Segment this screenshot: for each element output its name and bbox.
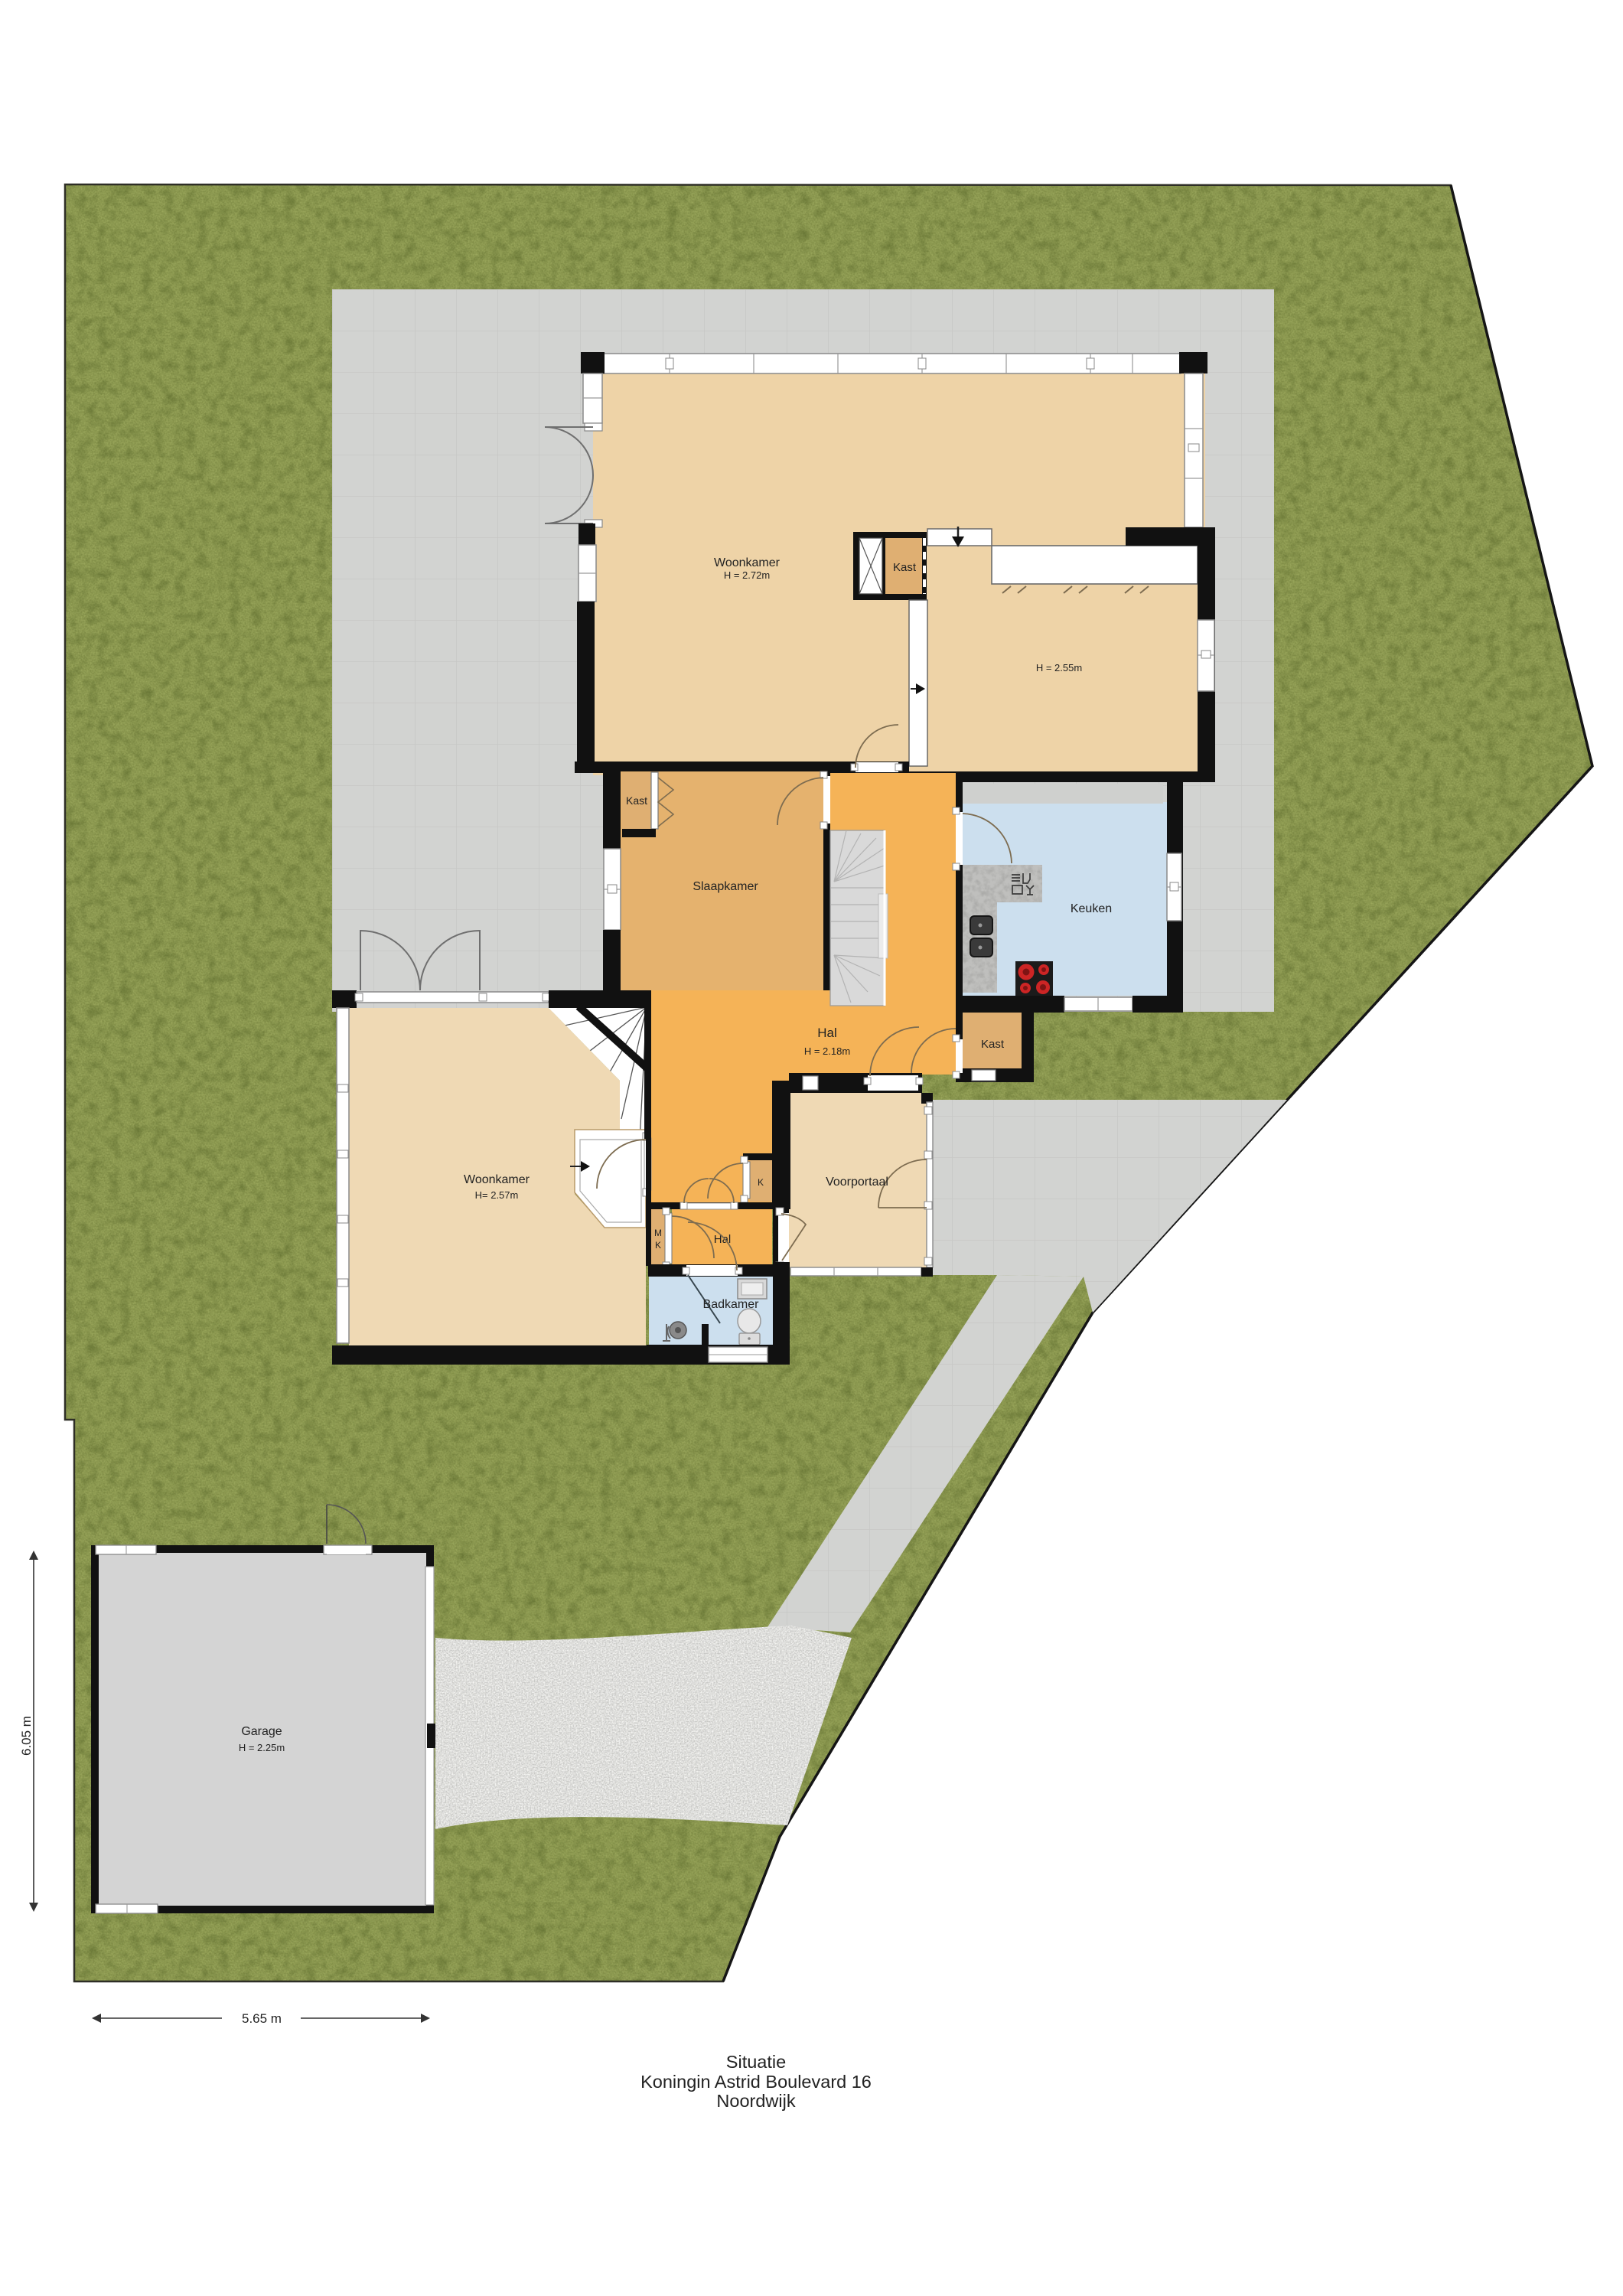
svg-text:H = 2.55m: H = 2.55m: [1036, 662, 1082, 673]
svg-text:Situatie: Situatie: [726, 2052, 786, 2072]
svg-text:Koningin Astrid Boulevard 16: Koningin Astrid Boulevard 16: [640, 2072, 872, 2092]
svg-text:Kast: Kast: [893, 561, 917, 574]
svg-text:Noordwijk: Noordwijk: [716, 2091, 795, 2111]
svg-text:5.65 m: 5.65 m: [242, 2011, 282, 2026]
svg-text:Garage: Garage: [241, 1725, 282, 1738]
svg-text:Badkamer: Badkamer: [703, 1298, 760, 1311]
svg-text:H= 2.57m: H= 2.57m: [475, 1189, 519, 1201]
svg-text:H = 2.18m: H = 2.18m: [804, 1045, 850, 1057]
svg-text:H = 2.72m: H = 2.72m: [724, 569, 770, 581]
svg-text:H = 2.25m: H = 2.25m: [239, 1742, 285, 1753]
svg-text:Woonkamer: Woonkamer: [464, 1173, 530, 1186]
svg-text:K: K: [655, 1240, 661, 1251]
svg-text:Slaapkamer: Slaapkamer: [693, 880, 758, 893]
svg-text:Woonkamer: Woonkamer: [714, 556, 781, 569]
svg-text:Voorportaal: Voorportaal: [826, 1176, 888, 1189]
svg-text:Keuken: Keuken: [1071, 902, 1112, 915]
svg-text:Kast: Kast: [626, 794, 647, 807]
svg-text:Hal: Hal: [817, 1026, 837, 1040]
svg-text:M: M: [654, 1228, 662, 1238]
svg-text:Kast: Kast: [981, 1038, 1005, 1051]
svg-text:K: K: [758, 1177, 764, 1188]
svg-text:6.05 m: 6.05 m: [19, 1716, 34, 1756]
